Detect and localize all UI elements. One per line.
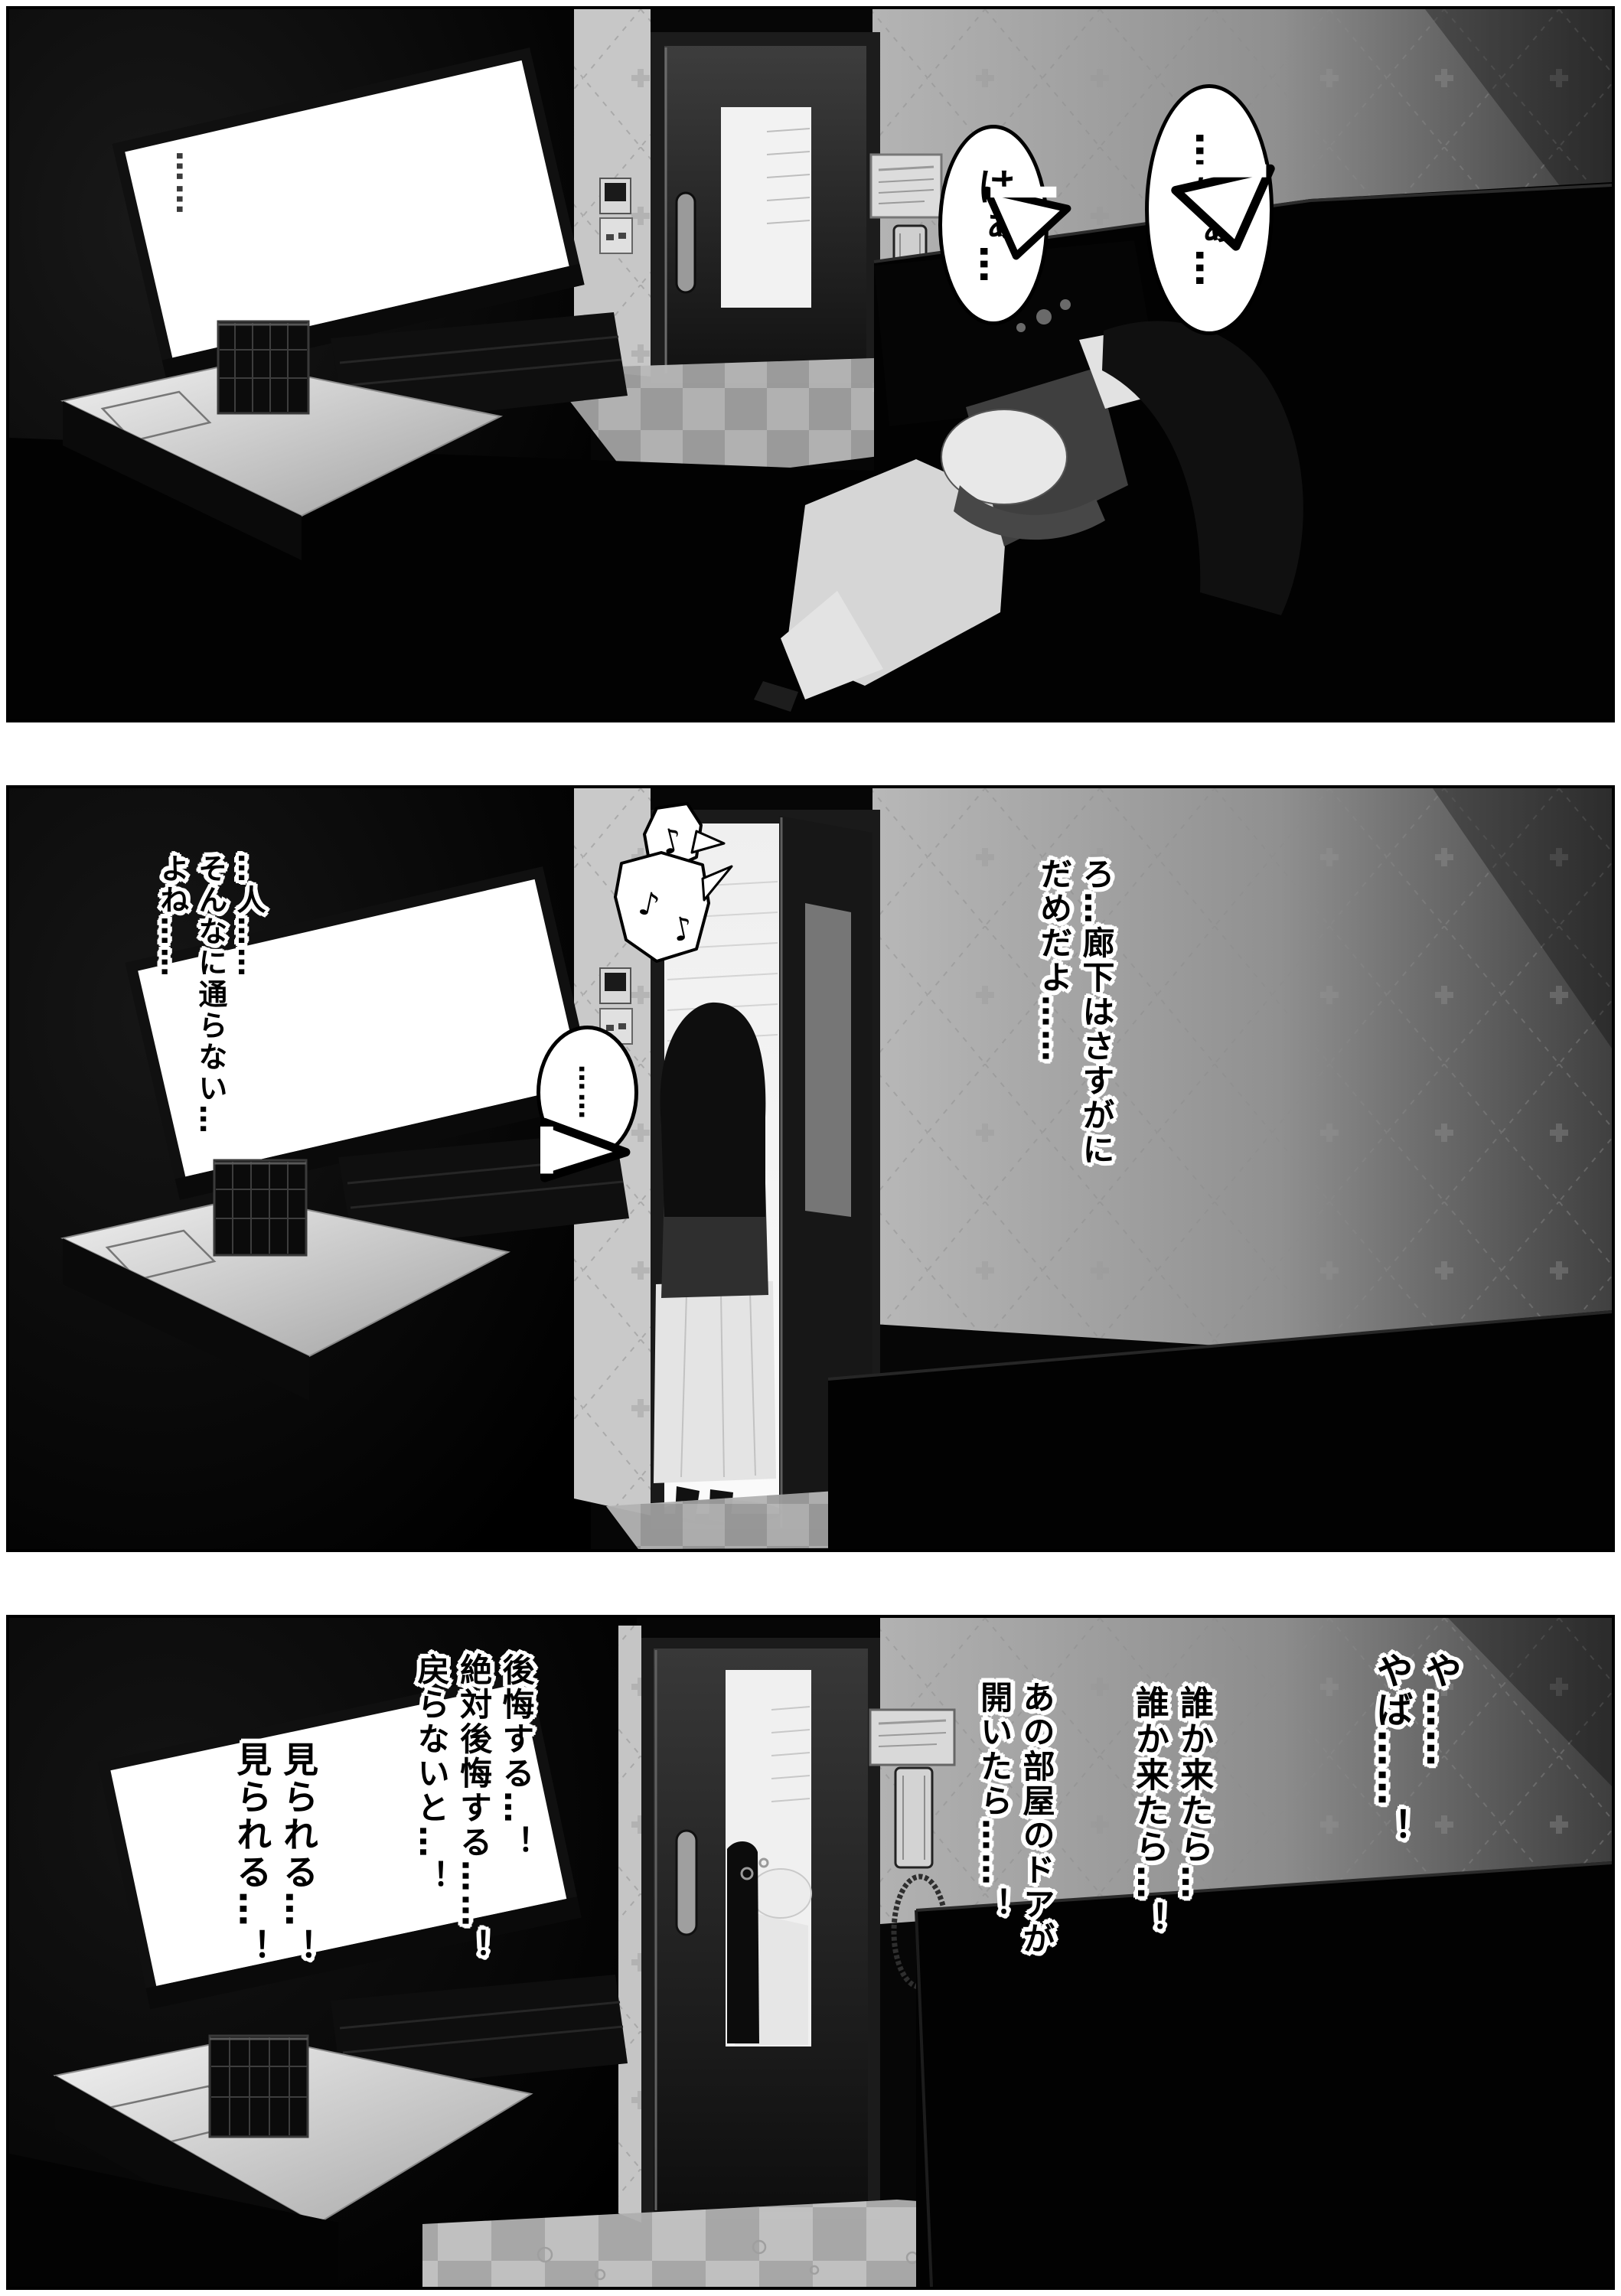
door-handle [677,1831,696,1935]
panel-2: ♪ ♪ ♪ [6,785,1615,1552]
basket [218,321,308,413]
bubble-tail [540,1089,634,1215]
intercom-panel [600,968,631,1003]
bubble-tail [976,129,1078,321]
basket [214,1160,306,1255]
door-side-wall [618,1626,641,2223]
door-handle [677,193,695,292]
basket [210,2036,308,2137]
ambient-ellipsis: …… [166,151,207,217]
right-wall [872,788,1612,1370]
door-window [805,903,851,1217]
monologue-far-right: や…… やば……！ [1366,1652,1463,1847]
light-switch [600,218,632,253]
panel-3: や…… やば……！ 誰か来たら… 誰か来たら…！ あの部屋のドアが 開いたら……… [6,1615,1615,2290]
intercom-panel [600,178,631,214]
wall-notice-frame [870,1710,954,1765]
monologue-left: 後悔する…！ 絶対後悔する……！ 戻らないと…！ [410,1653,537,1963]
door [651,32,880,383]
speech-bubble-left: はぁ… [938,125,1049,325]
monologue-right: 誰か来たら… 誰か来たら…！ [1127,1685,1215,1937]
silence-bubble: …… [537,1026,638,1159]
panel-1-art [9,9,1612,719]
skirt [654,1281,776,1483]
bubble-tail [1163,88,1283,331]
woman-figure [654,1003,782,1525]
wall-notice-frame [871,155,941,217]
monologue-far-left: 見られる…！ 見られる…！ [229,1741,321,1966]
hair [660,1003,766,1217]
monologue-right: ろ…廊下はさすがに だめだよ…… [1032,857,1117,1167]
panel-1: …… はぁ… …はぁ… [6,6,1615,722]
manga-page: …… はぁ… …はぁ… [0,0,1621,2296]
speech-bubble-right: …はぁ… [1145,84,1274,335]
door [641,1638,880,2219]
monologue-mid: あの部屋のドアが 開いたら……！ [973,1681,1058,1956]
door-window [721,107,811,308]
monologue-left: …人…… そんなに通らない… よね…… [153,853,268,1136]
